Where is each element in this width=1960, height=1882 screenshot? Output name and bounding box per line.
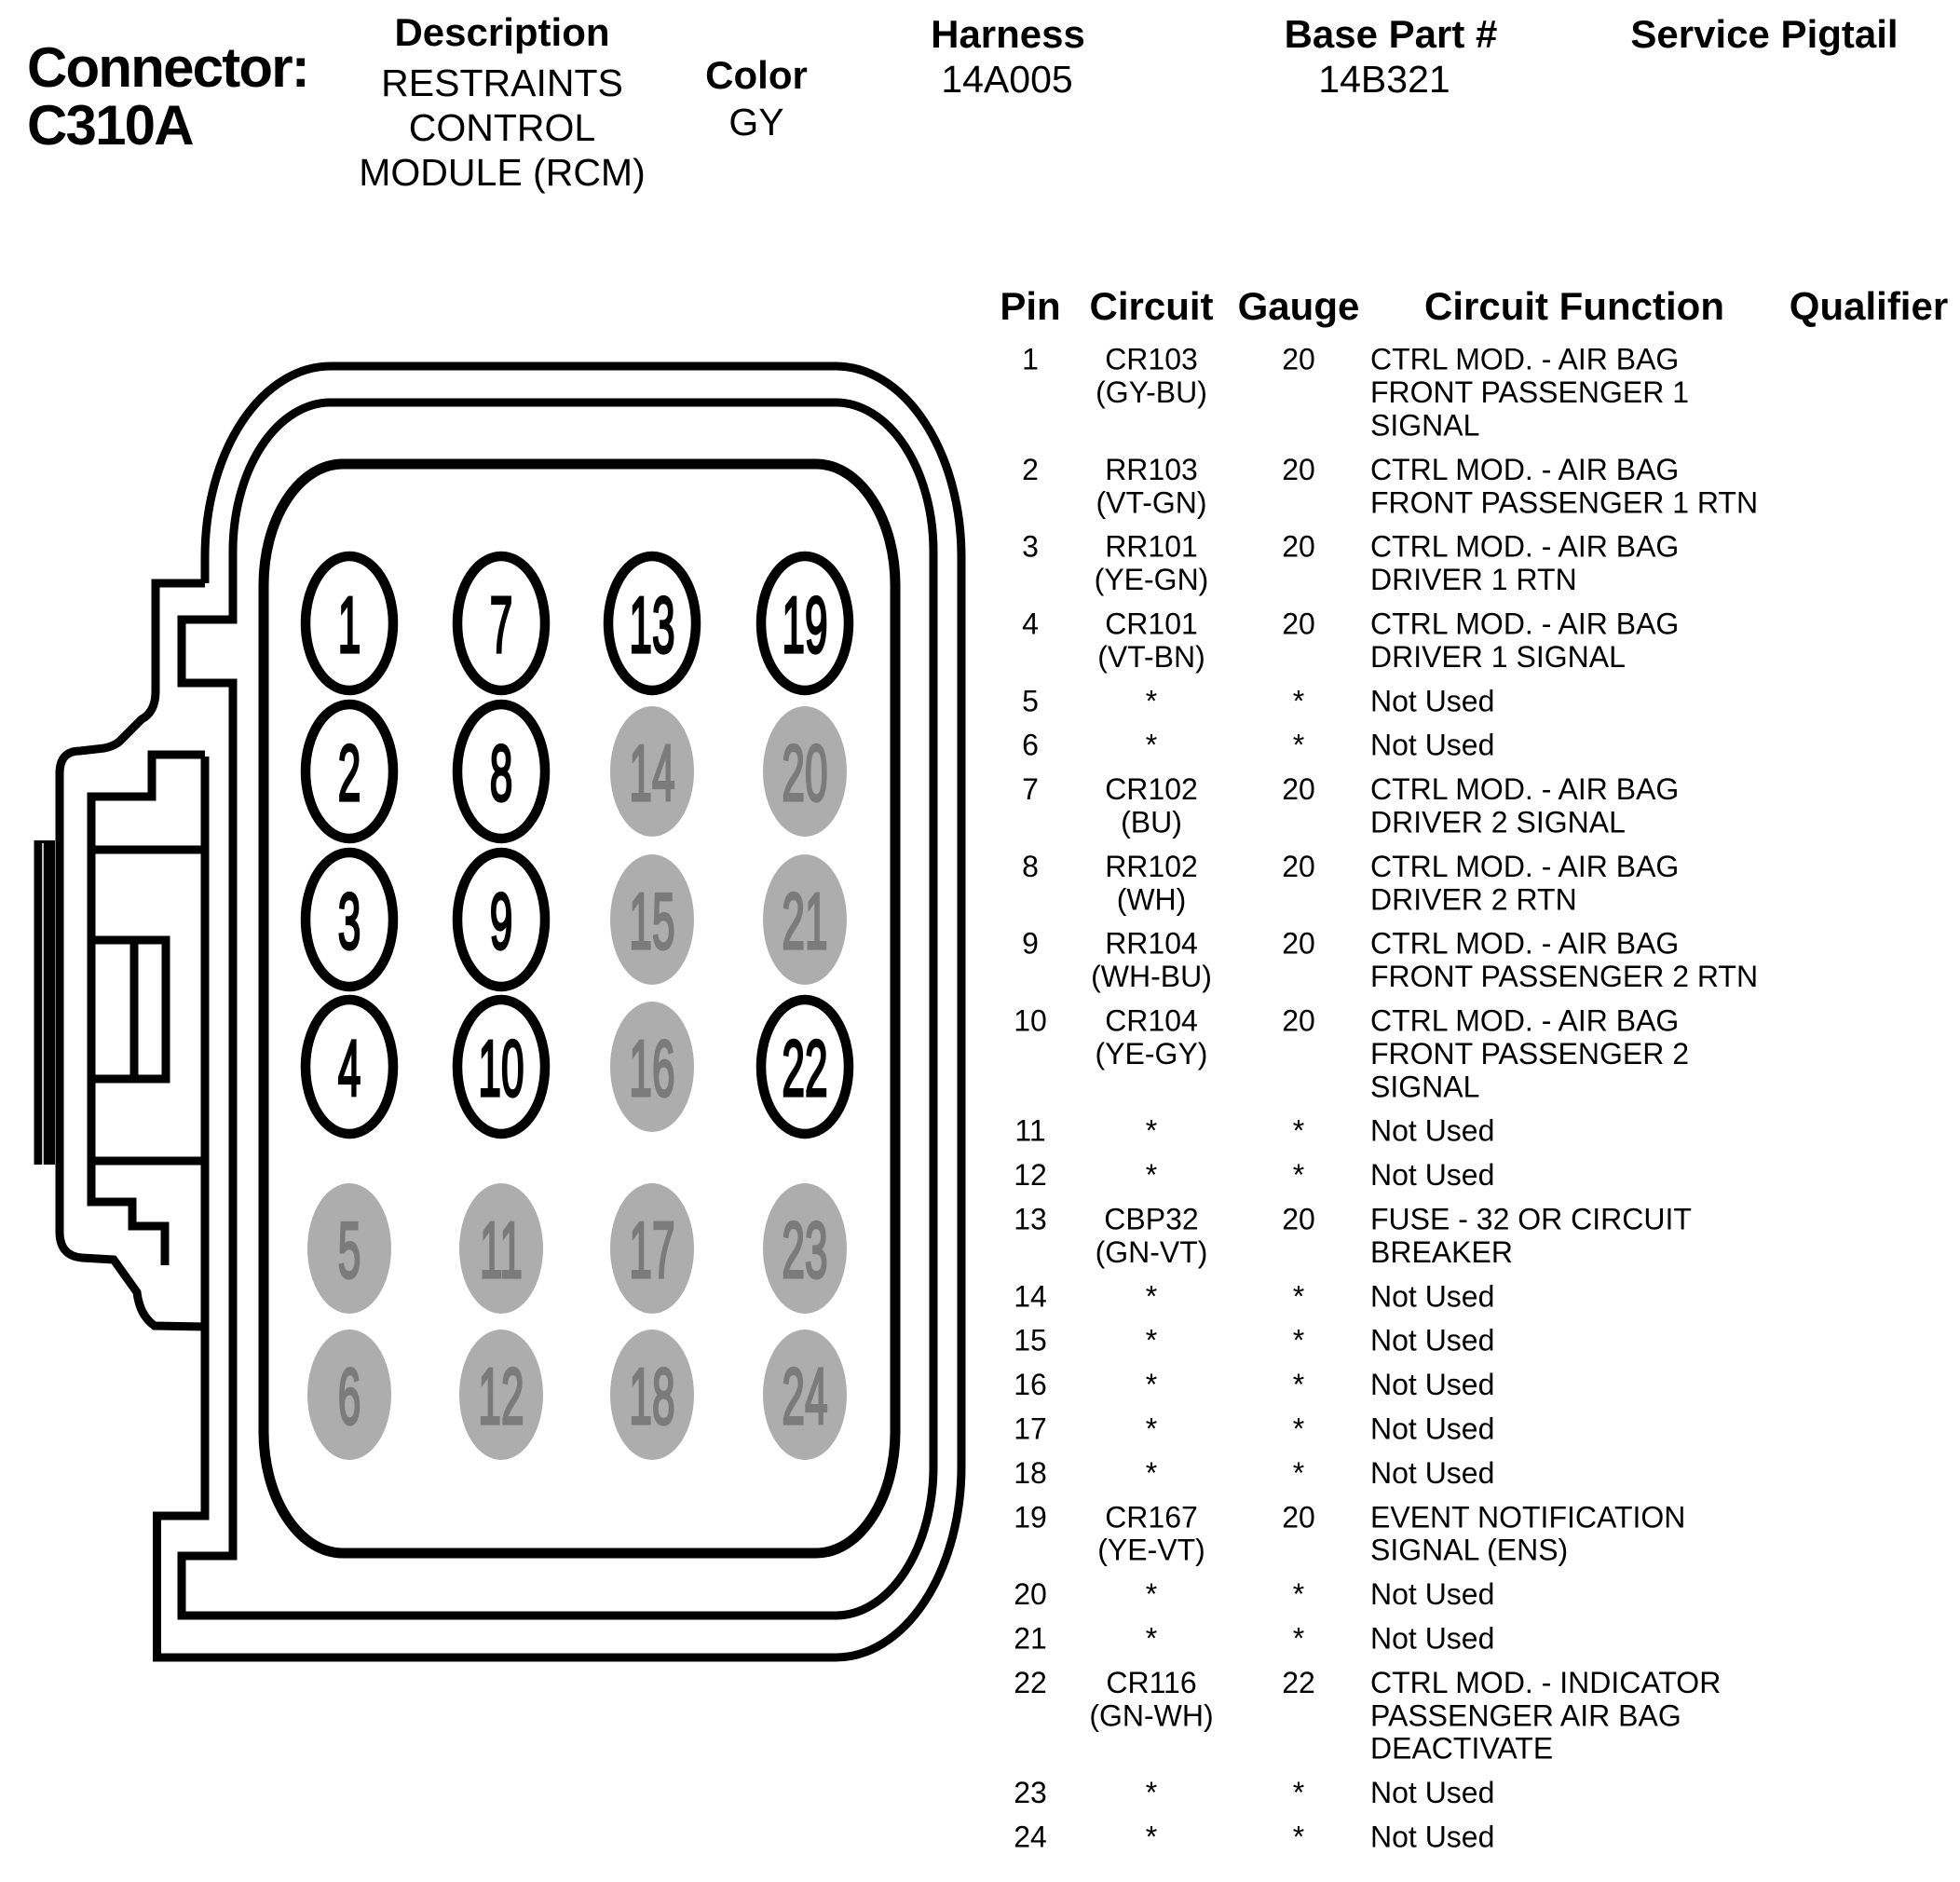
svg-text:Not Used: Not Used	[1370, 1622, 1494, 1656]
svg-text:CR116: CR116	[1106, 1666, 1196, 1699]
svg-text:*: *	[1293, 1114, 1304, 1148]
svg-text:Qualifier: Qualifier	[1790, 284, 1948, 328]
svg-text:*: *	[1293, 1324, 1304, 1357]
svg-text:22: 22	[1282, 1666, 1315, 1699]
svg-text:Not Used: Not Used	[1370, 1456, 1494, 1490]
svg-text:3: 3	[1022, 530, 1039, 564]
svg-text:FRONT PASSENGER 1 RTN: FRONT PASSENGER 1 RTN	[1370, 485, 1758, 519]
svg-text:13: 13	[1014, 1203, 1047, 1236]
svg-text:16: 16	[629, 1026, 674, 1113]
svg-text:5: 5	[338, 1207, 361, 1295]
svg-text:CONTROL: CONTROL	[409, 106, 595, 149]
svg-text:24: 24	[782, 1354, 827, 1441]
svg-text:*: *	[1146, 1412, 1157, 1446]
svg-text:BREAKER: BREAKER	[1370, 1235, 1513, 1269]
svg-text:20: 20	[1282, 453, 1315, 486]
svg-text:RR103: RR103	[1105, 453, 1198, 486]
svg-text:*: *	[1293, 1412, 1304, 1446]
svg-text:*: *	[1146, 684, 1157, 717]
svg-text:11: 11	[480, 1207, 523, 1295]
svg-text:Pin: Pin	[1000, 284, 1060, 328]
svg-text:CTRL MOD. - AIR BAG: CTRL MOD. - AIR BAG	[1370, 453, 1679, 486]
svg-text:EVENT NOTIFICATION: EVENT NOTIFICATION	[1370, 1500, 1685, 1534]
svg-text:9: 9	[490, 879, 513, 966]
svg-text:RESTRAINTS: RESTRAINTS	[381, 61, 623, 104]
svg-text:Base Part #: Base Part #	[1285, 12, 1498, 56]
svg-text:13: 13	[629, 582, 674, 670]
svg-text:SIGNAL: SIGNAL	[1370, 409, 1479, 443]
svg-text:19: 19	[782, 582, 827, 670]
svg-text:20: 20	[1282, 530, 1315, 564]
svg-text:14: 14	[1014, 1279, 1047, 1313]
svg-text:2: 2	[1022, 453, 1039, 486]
svg-text:(GN-WH): (GN-WH)	[1089, 1698, 1213, 1732]
svg-text:FRONT PASSENGER 2 RTN: FRONT PASSENGER 2 RTN	[1370, 960, 1758, 993]
svg-text:20: 20	[1282, 343, 1315, 376]
svg-text:Gauge: Gauge	[1238, 284, 1360, 328]
svg-text:23: 23	[782, 1207, 827, 1295]
svg-text:Harness: Harness	[931, 12, 1085, 56]
svg-text:FRONT PASSENGER 1: FRONT PASSENGER 1	[1370, 375, 1689, 409]
svg-text:8: 8	[1022, 850, 1039, 883]
svg-text:*: *	[1146, 1776, 1157, 1809]
svg-text:CBP32: CBP32	[1104, 1203, 1198, 1236]
svg-text:*: *	[1293, 1577, 1304, 1611]
svg-text:CTRL MOD. - AIR BAG: CTRL MOD. - AIR BAG	[1370, 1004, 1679, 1038]
svg-text:Not Used: Not Used	[1370, 1412, 1494, 1446]
svg-text:(BU): (BU)	[1121, 806, 1182, 839]
svg-text:7: 7	[490, 582, 513, 670]
svg-text:10: 10	[1014, 1004, 1047, 1038]
svg-text:7: 7	[1022, 772, 1039, 806]
svg-text:Circuit: Circuit	[1089, 284, 1213, 328]
svg-text:20: 20	[1282, 927, 1315, 961]
svg-text:CTRL MOD. - AIR BAG: CTRL MOD. - AIR BAG	[1370, 927, 1679, 961]
svg-text:Color: Color	[705, 53, 808, 97]
svg-text:20: 20	[1282, 607, 1315, 641]
svg-text:RR102: RR102	[1105, 850, 1198, 883]
svg-text:22: 22	[782, 1026, 827, 1113]
svg-text:Not Used: Not Used	[1370, 1324, 1494, 1357]
svg-text:CR102: CR102	[1105, 772, 1198, 806]
svg-text:Circuit Function: Circuit Function	[1424, 284, 1724, 328]
svg-text:*: *	[1293, 1821, 1304, 1854]
svg-text:9: 9	[1022, 927, 1039, 961]
svg-text:8: 8	[490, 730, 513, 818]
svg-text:(GN-VT): (GN-VT)	[1096, 1235, 1208, 1269]
svg-text:Description: Description	[394, 10, 609, 54]
svg-text:*: *	[1146, 1577, 1157, 1611]
svg-text:DRIVER 2 RTN: DRIVER 2 RTN	[1370, 882, 1577, 916]
svg-text:*: *	[1293, 1776, 1304, 1809]
svg-text:10: 10	[478, 1026, 524, 1113]
svg-text:FRONT PASSENGER 2: FRONT PASSENGER 2	[1370, 1037, 1689, 1071]
svg-text:Not Used: Not Used	[1370, 1158, 1494, 1192]
svg-text:21: 21	[1014, 1622, 1047, 1656]
svg-text:17: 17	[629, 1207, 674, 1295]
svg-text:*: *	[1146, 1324, 1157, 1357]
svg-text:*: *	[1146, 1114, 1157, 1148]
svg-text:4: 4	[338, 1026, 361, 1113]
svg-text:CTRL MOD. - AIR BAG: CTRL MOD. - AIR BAG	[1370, 343, 1679, 376]
svg-text:2: 2	[338, 730, 361, 818]
svg-text:17: 17	[1014, 1412, 1047, 1446]
svg-text:20: 20	[1014, 1577, 1047, 1611]
svg-text:20: 20	[1282, 772, 1315, 806]
svg-text:*: *	[1293, 729, 1304, 762]
svg-text:GY: GY	[728, 101, 783, 143]
svg-text:DEACTIVATE: DEACTIVATE	[1370, 1732, 1553, 1766]
svg-text:14: 14	[629, 730, 674, 818]
svg-text:*: *	[1146, 1821, 1157, 1854]
svg-text:14B321: 14B321	[1318, 58, 1450, 101]
svg-text:*: *	[1293, 1158, 1304, 1192]
svg-text:(VT-BN): (VT-BN)	[1097, 640, 1205, 674]
svg-text:20: 20	[1282, 1203, 1315, 1236]
svg-text:(WH-BU): (WH-BU)	[1091, 960, 1212, 993]
svg-text:DRIVER 2 SIGNAL: DRIVER 2 SIGNAL	[1370, 806, 1626, 839]
svg-text:21: 21	[782, 879, 827, 966]
svg-text:Service Pigtail: Service Pigtail	[1630, 12, 1898, 56]
svg-text:C310A: C310A	[27, 94, 193, 157]
svg-text:Not Used: Not Used	[1370, 1776, 1494, 1809]
svg-text:CTRL MOD. - AIR BAG: CTRL MOD. - AIR BAG	[1370, 850, 1679, 883]
svg-text:14A005: 14A005	[941, 58, 1072, 101]
svg-text:(VT-GN): (VT-GN)	[1096, 485, 1206, 519]
svg-text:*: *	[1146, 1279, 1157, 1313]
svg-text:6: 6	[338, 1354, 361, 1441]
svg-text:16: 16	[1014, 1368, 1047, 1401]
svg-text:1: 1	[338, 582, 361, 670]
svg-text:(GY-BU): (GY-BU)	[1096, 375, 1207, 409]
svg-text:FUSE - 32 OR CIRCUIT: FUSE - 32 OR CIRCUIT	[1370, 1203, 1692, 1236]
svg-text:DRIVER 1 RTN: DRIVER 1 RTN	[1370, 563, 1577, 596]
svg-text:*: *	[1146, 729, 1157, 762]
svg-text:6: 6	[1022, 729, 1039, 762]
svg-text:*: *	[1293, 1368, 1304, 1401]
svg-text:18: 18	[1014, 1456, 1047, 1490]
svg-text:(YE-GN): (YE-GN)	[1095, 563, 1209, 596]
svg-text:*: *	[1146, 1456, 1157, 1490]
svg-text:Connector:: Connector:	[27, 36, 308, 99]
svg-text:(YE-VT): (YE-VT)	[1097, 1534, 1205, 1567]
svg-text:Not Used: Not Used	[1370, 1577, 1494, 1611]
svg-text:15: 15	[1014, 1324, 1047, 1357]
svg-text:Not Used: Not Used	[1370, 684, 1494, 717]
svg-text:12: 12	[478, 1354, 524, 1441]
svg-text:Not Used: Not Used	[1370, 1821, 1494, 1854]
svg-text:24: 24	[1014, 1821, 1047, 1854]
svg-text:PASSENGER AIR BAG: PASSENGER AIR BAG	[1370, 1698, 1681, 1732]
svg-text:(YE-GY): (YE-GY)	[1096, 1037, 1208, 1071]
svg-text:*: *	[1293, 1456, 1304, 1490]
svg-text:*: *	[1293, 684, 1304, 717]
svg-text:11: 11	[1014, 1114, 1045, 1148]
svg-text:CR167: CR167	[1105, 1500, 1198, 1534]
svg-text:Not Used: Not Used	[1370, 1279, 1494, 1313]
svg-text:15: 15	[629, 879, 674, 966]
svg-text:Not Used: Not Used	[1370, 729, 1494, 762]
svg-text:*: *	[1146, 1158, 1157, 1192]
svg-text:RR104: RR104	[1105, 927, 1198, 961]
svg-text:20: 20	[1282, 1500, 1315, 1534]
svg-text:CR103: CR103	[1105, 343, 1198, 376]
svg-text:SIGNAL (ENS): SIGNAL (ENS)	[1370, 1534, 1568, 1567]
svg-text:CR101: CR101	[1105, 607, 1198, 641]
svg-text:(WH): (WH)	[1117, 882, 1187, 916]
svg-text:Not Used: Not Used	[1370, 1114, 1494, 1148]
svg-text:CTRL MOD. - INDICATOR: CTRL MOD. - INDICATOR	[1370, 1666, 1721, 1699]
svg-text:Not Used: Not Used	[1370, 1368, 1494, 1401]
svg-text:SIGNAL: SIGNAL	[1370, 1070, 1479, 1103]
svg-text:CTRL MOD. - AIR BAG: CTRL MOD. - AIR BAG	[1370, 607, 1679, 641]
svg-text:*: *	[1293, 1622, 1304, 1656]
svg-text:RR101: RR101	[1105, 530, 1198, 564]
svg-text:12: 12	[1014, 1158, 1047, 1192]
svg-text:CTRL MOD. - AIR BAG: CTRL MOD. - AIR BAG	[1370, 772, 1679, 806]
svg-text:1: 1	[1022, 343, 1039, 376]
svg-text:20: 20	[1282, 850, 1315, 883]
svg-text:4: 4	[1022, 607, 1039, 641]
svg-text:MODULE (RCM): MODULE (RCM)	[359, 151, 645, 194]
svg-text:22: 22	[1014, 1666, 1047, 1699]
svg-text:3: 3	[338, 879, 361, 966]
svg-text:CTRL MOD. - AIR BAG: CTRL MOD. - AIR BAG	[1370, 530, 1679, 564]
svg-text:*: *	[1146, 1368, 1157, 1401]
svg-text:18: 18	[629, 1354, 674, 1441]
svg-text:DRIVER 1 SIGNAL: DRIVER 1 SIGNAL	[1370, 640, 1626, 674]
svg-text:19: 19	[1014, 1500, 1047, 1534]
svg-text:*: *	[1293, 1279, 1304, 1313]
svg-text:23: 23	[1014, 1776, 1047, 1809]
svg-text:20: 20	[782, 730, 827, 818]
svg-text:*: *	[1146, 1622, 1157, 1656]
svg-text:20: 20	[1282, 1004, 1315, 1038]
svg-text:CR104: CR104	[1105, 1004, 1198, 1038]
svg-text:5: 5	[1022, 684, 1039, 717]
